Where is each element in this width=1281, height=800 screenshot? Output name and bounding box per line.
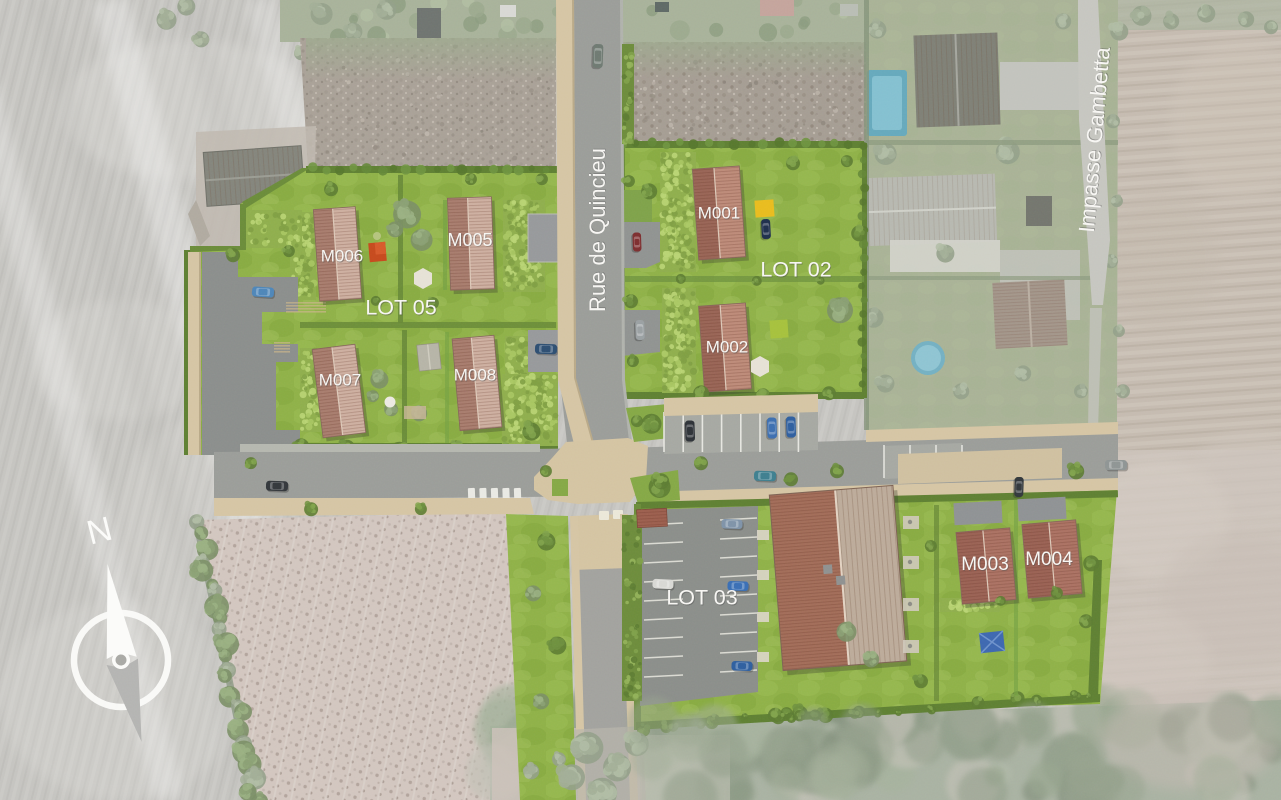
svg-text:M001: M001	[698, 203, 741, 222]
svg-text:M005: M005	[447, 230, 492, 250]
svg-text:M004: M004	[1025, 549, 1073, 570]
svg-text:M008: M008	[454, 365, 497, 384]
svg-text:Rue de Quincieu: Rue de Quincieu	[585, 148, 610, 312]
svg-text:LOT 03: LOT 03	[666, 586, 737, 610]
svg-text:LOT 05: LOT 05	[365, 296, 436, 320]
svg-text:LOT 02: LOT 02	[760, 258, 831, 282]
svg-text:M006: M006	[321, 246, 364, 265]
svg-text:M002: M002	[706, 337, 749, 356]
svg-text:M003: M003	[961, 554, 1009, 575]
svg-text:M007: M007	[319, 370, 362, 389]
